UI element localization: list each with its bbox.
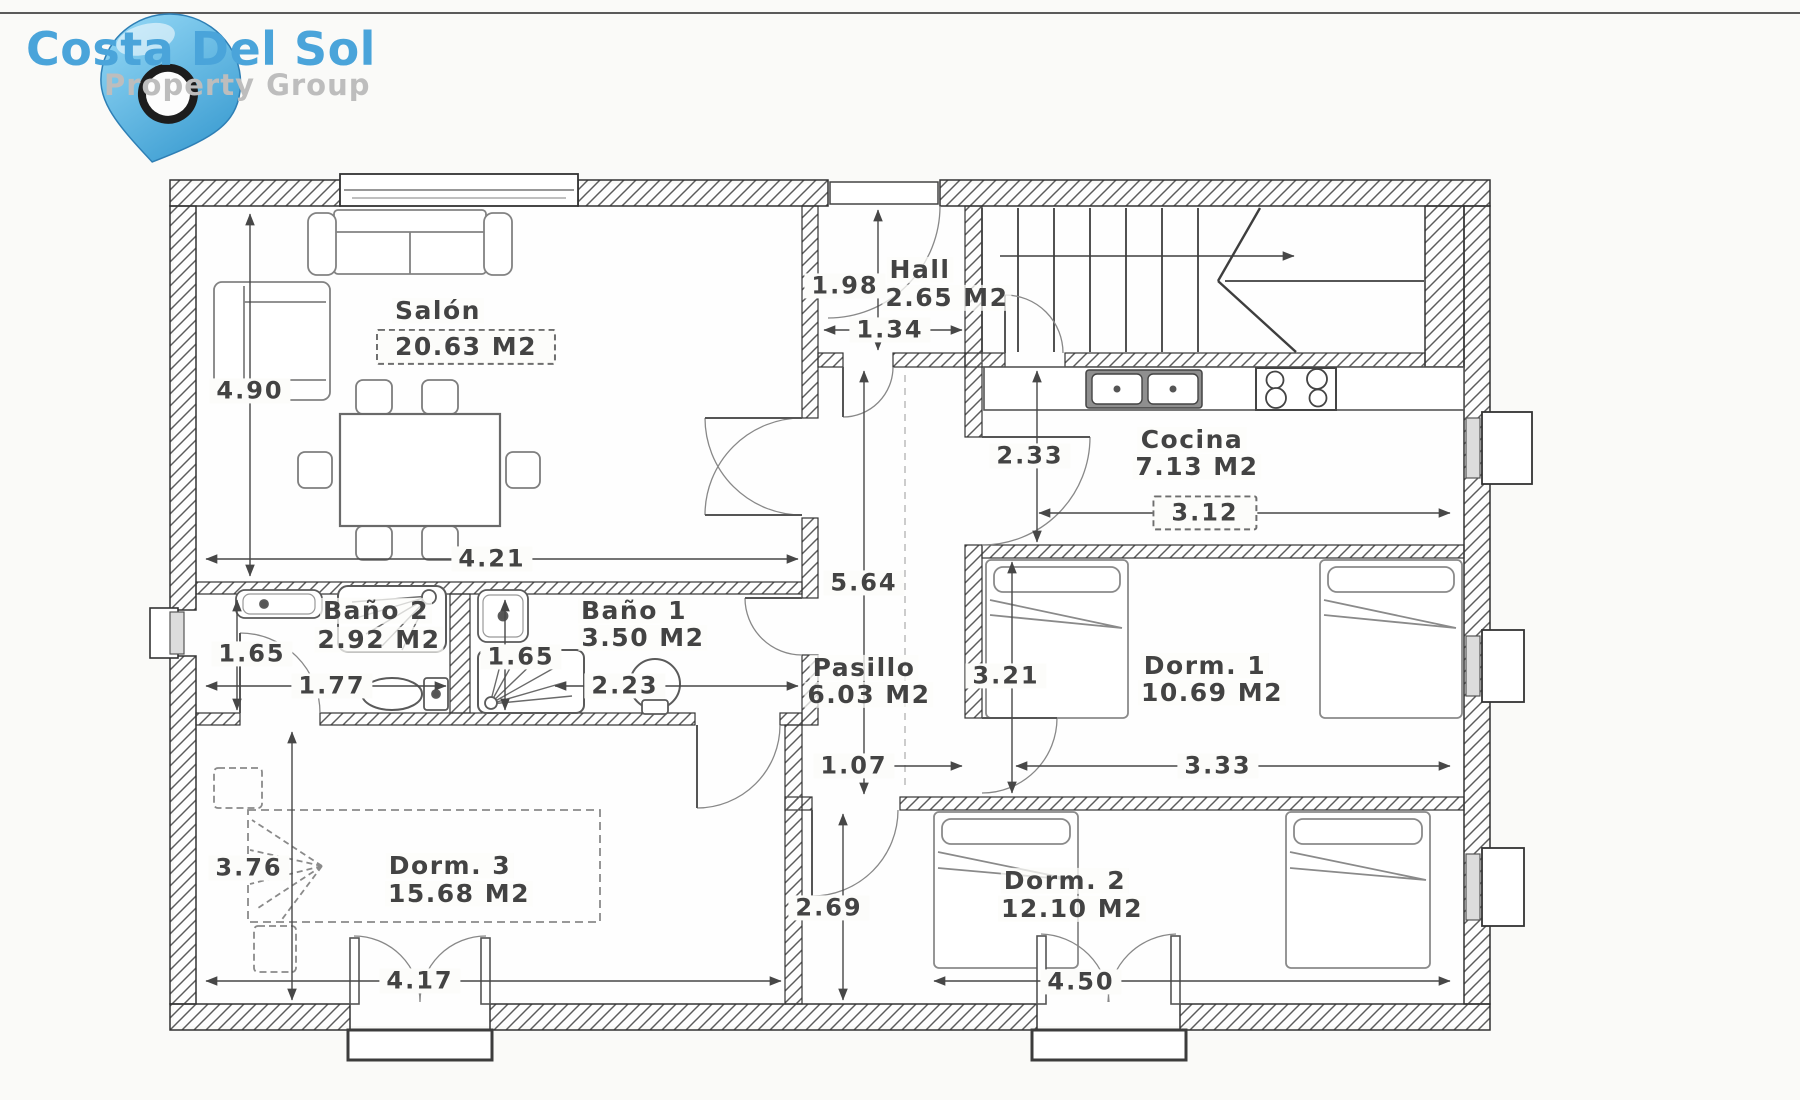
dim-cocina-width: 3.12 [1152,495,1257,530]
room-label-hall: Hall [887,257,954,283]
room-area-dorm3: 15.68 M2 [385,881,533,907]
room-area-salon: 20.63 M2 [376,329,556,365]
room-area-hall: 2.65 M2 [882,285,1011,311]
dim-salon-height: 4.90 [209,378,290,403]
brand-subtitle: Property Group [104,68,371,102]
kitchen-counter [984,367,1464,410]
dim-dorm2-height: 2.69 [788,895,869,920]
dim-dorm1-width: 3.33 [1177,753,1258,778]
dim-hall-width: 1.34 [849,317,930,342]
room-label-bano2: Baño 2 [320,598,432,624]
dim-bano1-width: 2.23 [584,673,665,698]
dim-bano2-height: 1.65 [211,641,292,666]
room-label-dorm1: Dorm. 1 [1141,653,1269,679]
room-label-cocina: Cocina [1138,427,1247,453]
sofa [308,210,512,275]
entrance-door-leaf [830,182,938,204]
room-area-dorm1: 10.69 M2 [1138,680,1286,706]
room-label-salon: Salón [392,298,484,324]
room-area-bano1: 3.50 M2 [578,625,707,651]
room-area-cocina: 7.13 M2 [1132,454,1261,480]
dim-pasillo-width: 1.07 [813,753,894,778]
room-label-pasillo: Pasillo [810,655,919,681]
dim-dorm3-width: 4.17 [379,968,460,993]
room-area-pasillo: 6.03 M2 [804,682,933,708]
dim-dorm1-height: 3.21 [965,663,1046,688]
dim-dorm2-width: 4.50 [1040,969,1121,994]
balconies [348,1030,1186,1060]
room-label-bano1: Baño 1 [578,598,690,624]
dim-dorm3-height: 3.76 [208,855,289,880]
floor-plan-drawing [0,0,1800,1100]
room-area-dorm2: 12.10 M2 [998,896,1146,922]
room-label-dorm2: Dorm. 2 [1001,868,1129,894]
dim-bano1-height: 1.65 [480,644,561,669]
floor-plan-page: Costa Del Sol Property Group Salón 20.63… [0,0,1800,1100]
dim-salon-width: 4.21 [451,546,532,571]
dim-bano2-width: 1.77 [291,673,372,698]
room-label-dorm3: Dorm. 3 [386,853,514,879]
dim-pasillo-height: 5.64 [823,570,904,595]
dim-cocina-height: 2.33 [989,443,1070,468]
dim-hall-height: 1.98 [804,273,885,298]
kitchen-hob [1256,368,1336,410]
room-area-bano2: 2.92 M2 [314,627,443,653]
